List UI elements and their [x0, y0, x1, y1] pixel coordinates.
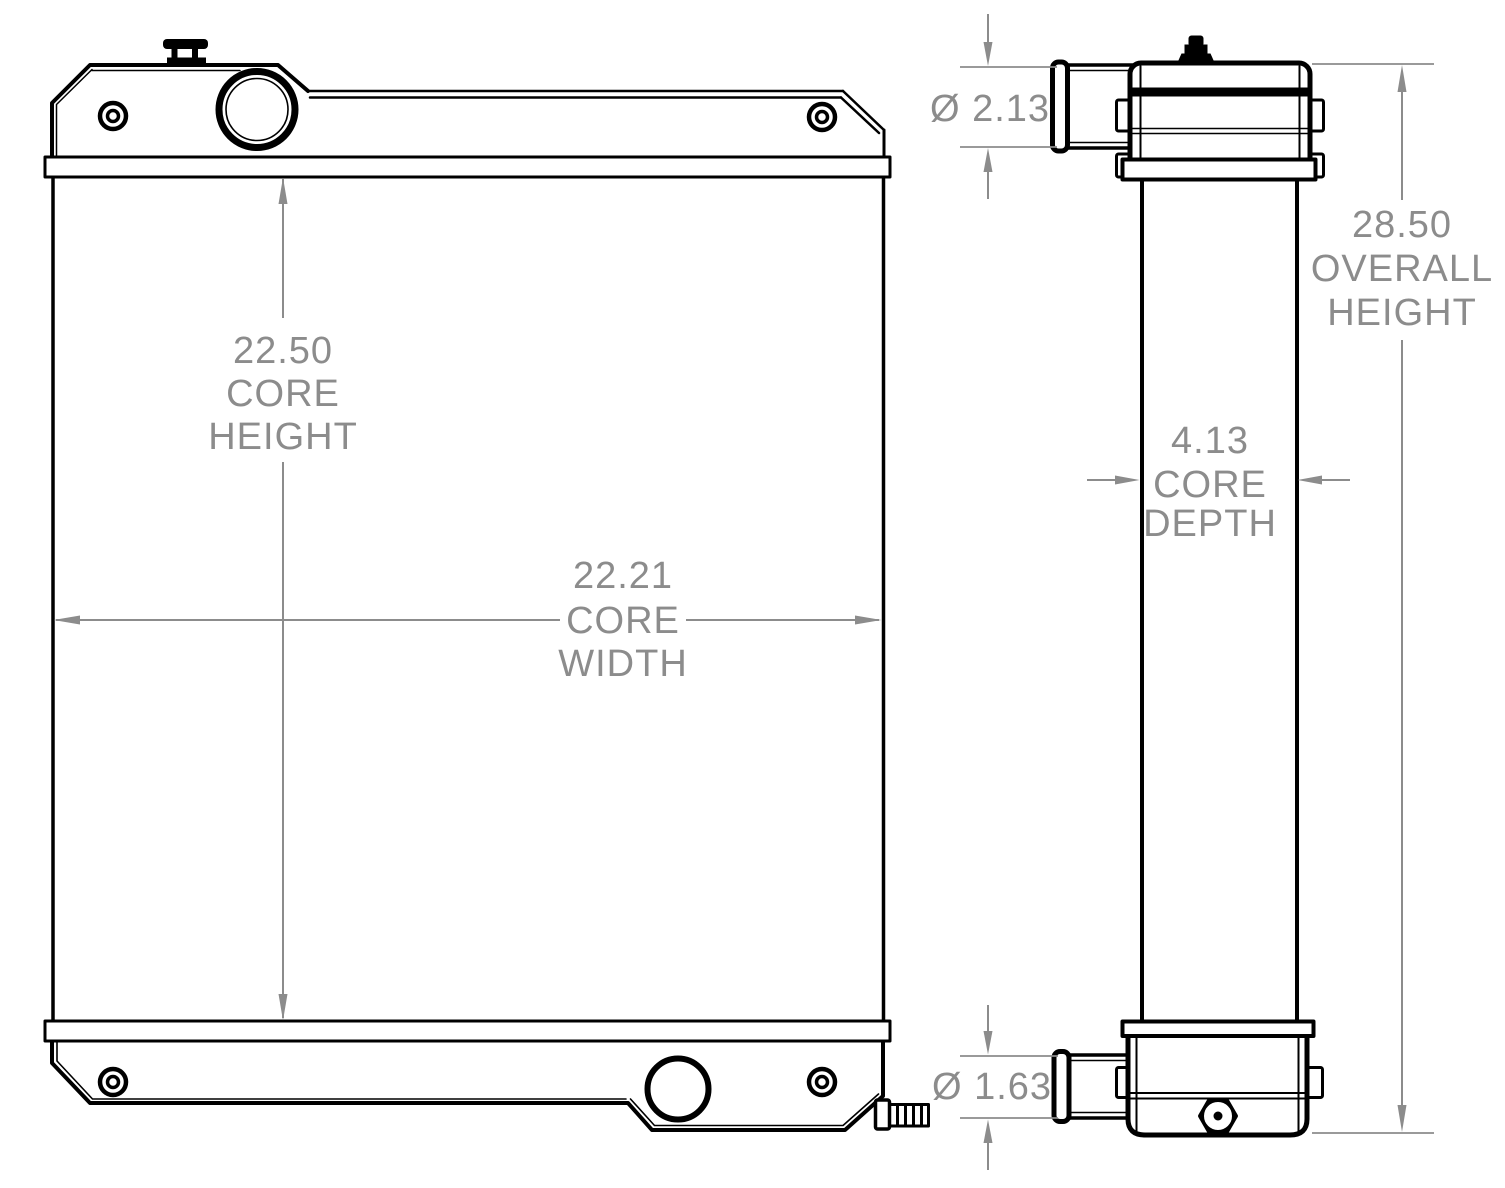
front-bottom-header-band — [45, 1021, 890, 1041]
overall-height-label-2: HEIGHT — [1327, 292, 1477, 334]
side-bottom-bracket — [1123, 1022, 1314, 1037]
tank-seam — [1133, 88, 1308, 97]
outlet-diameter-value: Ø 1.63 — [932, 1066, 1052, 1108]
side-bottom-tank — [1117, 1022, 1323, 1136]
dimension-core-depth: 4.13 CORE DEPTH — [1087, 420, 1350, 545]
arrowhead-down-icon — [984, 42, 993, 66]
inlet-diameter-value: Ø 2.13 — [930, 88, 1050, 130]
radiator-technical-drawing: 22.50 CORE HEIGHT 22.21 CORE WIDTH 4.13 … — [0, 0, 1505, 1188]
outlet-opening — [648, 1059, 709, 1120]
bolt-hole-bottom-right — [809, 1069, 835, 1095]
core-height-value: 22.50 — [233, 330, 333, 372]
arrowhead-down-icon — [984, 1031, 993, 1055]
front-top-header-band — [45, 157, 890, 177]
bolt-hole-top-left — [100, 103, 126, 129]
arrowhead-left-icon — [54, 616, 81, 625]
core-depth-value: 4.13 — [1171, 420, 1249, 462]
front-top-tank — [52, 39, 884, 157]
overall-height-label-1: OVERALL — [1311, 248, 1493, 290]
dimension-inlet-diameter: Ø 2.13 — [930, 14, 1057, 199]
filler-neck-opening — [219, 72, 295, 148]
dimension-core-width: 22.21 CORE WIDTH — [54, 555, 882, 685]
core-depth-label-2: DEPTH — [1143, 503, 1277, 545]
arrowhead-down-icon — [279, 994, 288, 1021]
core-depth-label-1: CORE — [1153, 464, 1267, 506]
arrowhead-right-icon — [1115, 476, 1140, 485]
core-height-label-2: HEIGHT — [208, 416, 358, 458]
side-view — [1053, 36, 1324, 1136]
arrowhead-up-icon — [279, 178, 288, 205]
arrowhead-down-icon — [1398, 1105, 1407, 1132]
arrowhead-left-icon — [1298, 476, 1323, 485]
bolt-hole-top-right — [809, 104, 835, 130]
front-core — [53, 177, 884, 1021]
radiator-cap-icon — [163, 39, 208, 64]
front-bottom-tank — [52, 1041, 929, 1130]
drain-plug — [1200, 1100, 1236, 1131]
side-top-tank — [1117, 36, 1324, 180]
dimension-overall-height: 28.50 OVERALL HEIGHT — [1311, 64, 1493, 1133]
side-top-bracket — [1123, 160, 1316, 180]
core-height-label-1: CORE — [226, 373, 340, 415]
dimension-core-height: 22.50 CORE HEIGHT — [208, 178, 358, 1021]
front-view — [45, 39, 929, 1130]
arrowhead-up-icon — [984, 1120, 993, 1144]
overall-height-value: 28.50 — [1352, 204, 1452, 246]
core-width-label-2: WIDTH — [558, 643, 688, 685]
core-width-label-1: CORE — [566, 600, 680, 642]
hose-barb-fitting — [876, 1100, 929, 1129]
bolt-hole-bottom-left — [100, 1069, 126, 1095]
side-cap-icon — [1178, 36, 1215, 63]
dimension-outlet-diameter: Ø 1.63 — [932, 1005, 1058, 1170]
arrowhead-right-icon — [855, 616, 882, 625]
core-width-value: 22.21 — [573, 555, 673, 597]
side-core — [1142, 180, 1297, 1023]
drawing-svg: 22.50 CORE HEIGHT 22.21 CORE WIDTH 4.13 … — [0, 0, 1505, 1188]
arrowhead-up-icon — [1398, 65, 1407, 92]
arrowhead-up-icon — [984, 148, 993, 172]
